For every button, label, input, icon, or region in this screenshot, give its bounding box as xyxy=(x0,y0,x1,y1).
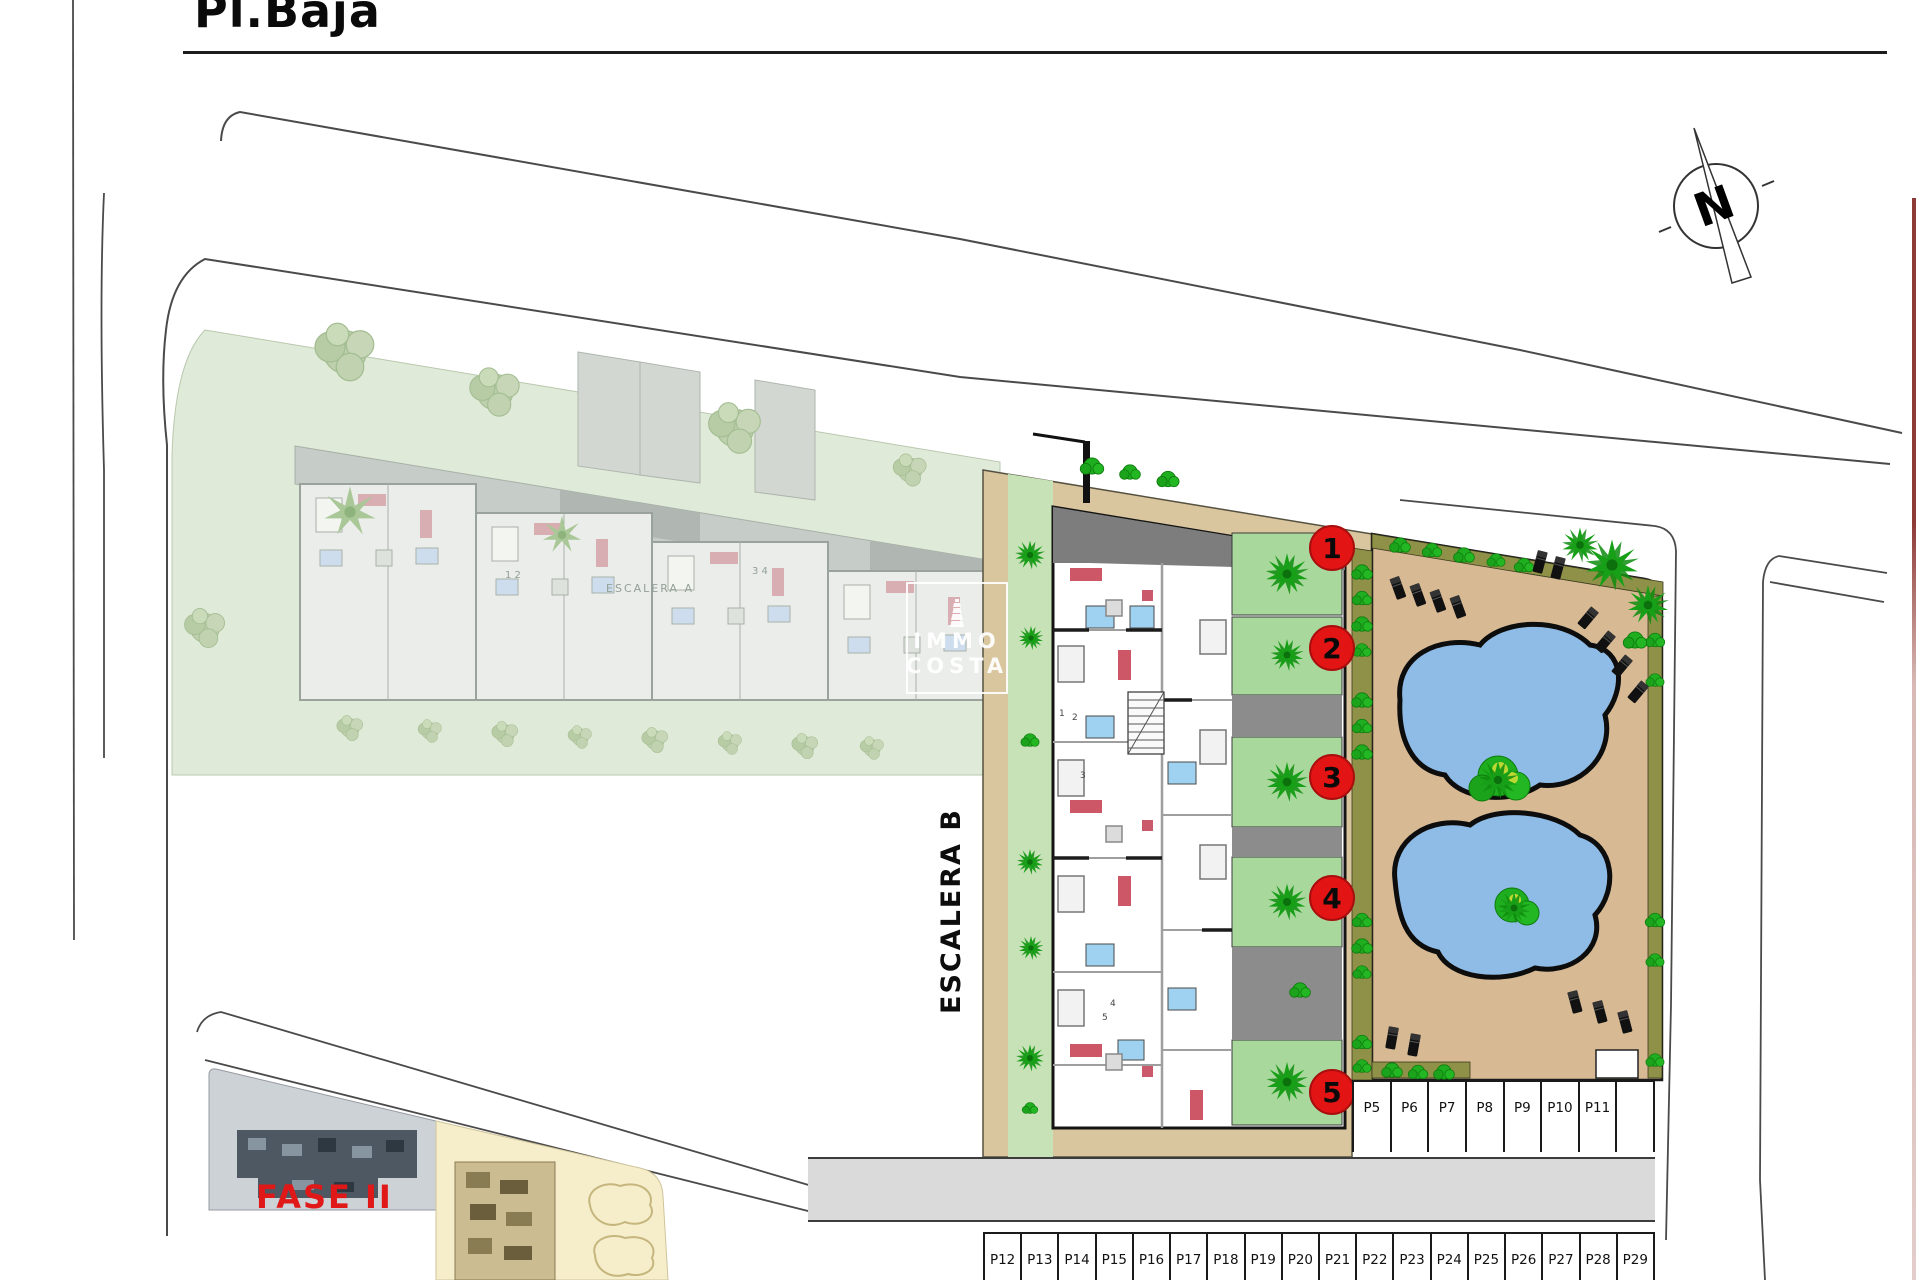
immocosta-watermark: IMMO COSTA xyxy=(906,582,1008,694)
watermark-line2: COSTA xyxy=(906,654,1008,678)
deck-shower-structure xyxy=(1596,1050,1638,1078)
parking-stall: P10 xyxy=(1542,1082,1580,1152)
parking-stall: P28 xyxy=(1581,1234,1618,1280)
escalera-b-label: ESCALERA B xyxy=(936,808,967,1014)
pool-deck xyxy=(1372,534,1662,1080)
parking-stall: P27 xyxy=(1543,1234,1580,1280)
parking-stall xyxy=(1617,1082,1653,1152)
page-title: Pl.Baja xyxy=(194,0,381,38)
parking-stall: P16 xyxy=(1134,1234,1171,1280)
parking-stall: P29 xyxy=(1618,1234,1653,1280)
parking-stall: P18 xyxy=(1208,1234,1245,1280)
svg-text:5: 5 xyxy=(1102,1013,1108,1023)
title-underline xyxy=(183,51,1887,54)
parking-stall: P21 xyxy=(1320,1234,1357,1280)
parking-stall: P6 xyxy=(1392,1082,1430,1152)
parking-stall: P20 xyxy=(1283,1234,1320,1280)
parking-stall: P19 xyxy=(1246,1234,1283,1280)
parking-stall: P13 xyxy=(1022,1234,1059,1280)
parking-stall: P24 xyxy=(1432,1234,1469,1280)
unit-marker-badge: 4 xyxy=(1309,875,1355,921)
parking-stall: P23 xyxy=(1394,1234,1431,1280)
parking-stall: P5 xyxy=(1354,1082,1392,1152)
unit-marker-badge: 5 xyxy=(1309,1069,1355,1115)
unit-marker-badge: 1 xyxy=(1309,525,1355,571)
parking-stall: P26 xyxy=(1506,1234,1543,1280)
stair-core xyxy=(1128,692,1164,754)
access-road xyxy=(808,1157,1655,1222)
parking-stall: P17 xyxy=(1171,1234,1208,1280)
parking-stall: P8 xyxy=(1467,1082,1505,1152)
svg-text:4: 4 xyxy=(1110,999,1116,1009)
parking-stall: P12 xyxy=(985,1234,1022,1280)
parking-row-bottom: P12P13P14P15P16P17P18P19P20P21P22P23P24P… xyxy=(983,1232,1655,1280)
unit-marker-badge: 3 xyxy=(1309,754,1355,800)
right-boundary-marker xyxy=(1912,198,1916,1280)
overview-inset xyxy=(209,1069,668,1280)
site-plan: ESCALERA A 1 2 3 4 N xyxy=(0,0,1920,1280)
top-band-bushes xyxy=(1080,458,1179,487)
watermark-line1: IMMO xyxy=(913,629,1000,653)
unit-marker-badge: 2 xyxy=(1309,625,1355,671)
parking-stall: P25 xyxy=(1469,1234,1506,1280)
parking-stall: P15 xyxy=(1097,1234,1134,1280)
svg-text:1: 1 xyxy=(1059,709,1065,719)
phase2-label: FASE II xyxy=(256,1178,393,1216)
parking-stall: P14 xyxy=(1059,1234,1096,1280)
parking-stall: P22 xyxy=(1357,1234,1394,1280)
parking-row-right: P5P6P7P8P9P10P11 xyxy=(1352,1080,1655,1152)
svg-text:2: 2 xyxy=(1072,713,1078,723)
inset-phase1-building xyxy=(455,1162,555,1280)
parking-stall: P11 xyxy=(1580,1082,1618,1152)
lighthouse-icon xyxy=(945,598,969,628)
svg-text:3: 3 xyxy=(1080,771,1086,781)
parking-stall: P9 xyxy=(1505,1082,1543,1152)
parking-stall: P7 xyxy=(1429,1082,1467,1152)
